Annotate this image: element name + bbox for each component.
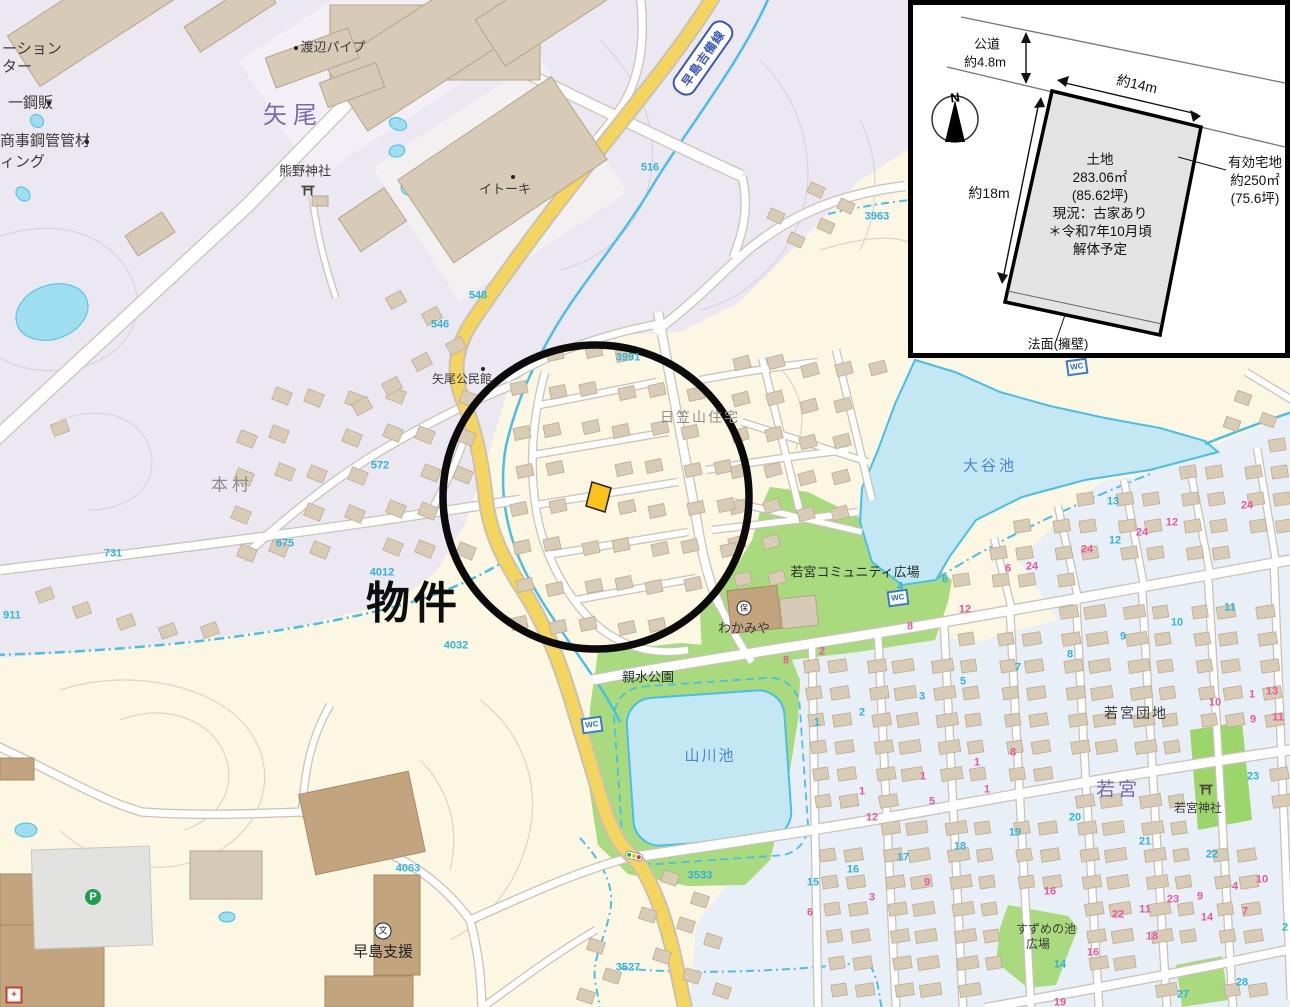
school-icon: 文 [375,923,392,940]
inset-road-width: 約4.8m [964,56,1006,69]
poi-label-yao-kominkan: 矢尾公民館 [432,373,492,385]
block-number: 16 [1087,948,1099,959]
block-number: 3527 [616,963,640,974]
block-number: 731 [104,549,122,560]
block-number: 19 [1009,828,1021,839]
inset-land-line: 283.06㎡ [1048,169,1152,187]
block-number: 24 [1026,562,1038,573]
area-label-hikasayama: 日笠山住宅 [660,410,740,424]
poi-label-hayashima-shien: 早島支援 [353,945,413,960]
north-compass: N [932,89,978,142]
lake-label-yamakawa: 山川池 [684,750,735,765]
block-number: 5 [960,677,966,688]
block-number: 7 [1242,907,1248,918]
block-number: 2 [859,708,865,719]
block-number: 546 [431,320,449,331]
block-number: 3 [919,692,925,703]
inset-effective-line: 有効宅地 [1228,154,1282,172]
block-number: 1 [814,718,820,729]
block-number: 12 [959,605,971,616]
poi-label-itoki: イトーキ [479,183,531,196]
block-number: 19 [1054,998,1066,1007]
poi-dot [511,175,515,179]
block-number: 10 [1209,698,1221,709]
block-number: 4032 [444,641,468,652]
parking-icon: P [85,889,101,905]
area-label-wakamiya: 若宮 [1096,781,1140,800]
nursery-icon: 保 [737,601,752,616]
block-number: 5 [929,797,935,808]
block-number: 4012 [370,568,394,579]
poi-dot [294,46,298,50]
block-number: 12 [1166,518,1178,529]
block-number: 9 [1250,715,1256,726]
poi-label-station-1: ーション [2,42,62,57]
area-label-yao: 矢尾 [263,104,323,128]
lake-label-otani: 大谷池 [963,460,1017,475]
block-number: 23 [1167,895,1179,906]
block-number: 11 [1224,603,1236,614]
block-number: 15 [807,878,819,889]
torii-icon [301,184,316,197]
inset-left-height: 約18m [968,186,1009,200]
poi-dot [47,101,51,105]
block-number: 11 [1139,905,1151,916]
block-number: 12 [866,813,878,824]
block-number: 8 [1010,748,1016,759]
area-label-wakamiya-danchi: 若宮団地 [1104,706,1168,720]
block-number: 27 [1177,990,1189,1001]
block-number: 1 [984,785,990,796]
block-number: 21 [1139,837,1151,848]
poi-label-station-2: ター [2,60,32,75]
wc-icon: WC [1065,358,1088,377]
block-number: 4 [897,582,903,593]
block-number: 2 [819,647,825,658]
poi-label-kumano-jinja: 熊野神社 [279,165,331,178]
block-number: 3533 [688,871,712,882]
block-number: 1 [859,787,865,798]
inset-road-name: 公道 [974,38,1000,51]
block-number: 20 [1069,813,1081,824]
block-number: 9 [1120,632,1126,643]
inset-effective-line: 約250㎡ [1228,172,1282,190]
block-number: 8 [907,622,913,633]
block-number: 3963 [865,212,889,223]
block-number: 8 [1067,650,1073,661]
real-estate-location-map: ーション ター 一鋼販 商事鋼管管材 ィング 渡辺パイプ 矢尾 熊野神社 イトー… [0,0,1290,1007]
block-number: 9 [1197,892,1203,903]
block-number: 7 [1015,663,1021,674]
block-number: 24 [1241,501,1253,512]
block-number: 17 [897,853,909,864]
block-number: 24 [1136,528,1148,539]
poi-label-watanabe-pipe: 渡辺パイプ [300,41,365,54]
block-number: 516 [641,163,659,174]
inset-slope-label: 法面(擁壁) [1028,338,1089,351]
block-number: 6 [942,575,948,586]
block-number: 16 [1044,887,1056,898]
block-number: 28 [1236,978,1248,989]
poi-label-suzume-1: すずめの池 [1016,923,1076,935]
poi-label-wakamiya-hoikuen: わかみや [718,622,770,635]
poi-dot [85,140,89,144]
poi-dot [481,367,485,371]
plot-diagram-inset: N 公道 約4.8m 約14m 約18m 土地 283.06㎡ (85.62坪)… [908,0,1290,358]
poi-label-wakamiya-jinja: 若宮神社 [1174,802,1222,814]
block-number: 22 [1112,910,1124,921]
inset-land-line: (85.62坪) [1048,187,1152,205]
inset-effective-info: 有効宅地 約250㎡ (75.6坪) [1228,154,1282,208]
block-number: 10 [1256,875,1268,886]
poi-label-wakamiya-plaza: 若宮コミュニティ広場 [790,566,919,579]
block-number: 4 [1232,882,1238,893]
block-number: 675 [276,539,294,550]
block-number: 11 [1272,713,1284,724]
block-number: 6 [1005,564,1011,575]
block-number: 18 [1146,932,1158,943]
block-number: 1 [920,772,926,783]
block-number: 22 [1206,850,1218,861]
block-number: 6 [807,908,813,919]
block-number: 13 [1266,687,1278,698]
block-number: 12 [1109,536,1121,547]
block-number: 16 [847,865,859,876]
block-number: 1 [974,758,980,769]
poi-label-shinsui-park: 親水公園 [622,671,674,684]
poi-label-shoji: 商事鋼管管材 [0,134,90,149]
inset-land-line: 現況：古家あり [1048,205,1152,223]
block-number: 18 [954,842,966,853]
block-number: 3 [869,893,875,904]
inset-land-line: ＊令和7年10月頃 [1048,223,1152,241]
block-number: 24 [1081,545,1093,556]
inset-land-line: 土地 [1048,151,1152,169]
block-number: 548 [469,291,487,302]
block-number: 13 [1107,497,1119,508]
property-label: 物件 [366,582,460,626]
inset-land-info: 土地 283.06㎡ (85.62坪) 現況：古家あり ＊令和7年10月頃 解体… [1048,151,1152,259]
block-number: 4063 [396,864,420,875]
block-number: 3991 [616,353,640,364]
torii-icon [1199,783,1214,796]
block-number: 8 [783,656,789,667]
area-label-honmura: 本村 [211,477,253,494]
block-number: 9 [924,878,930,889]
inset-effective-line: (75.6坪) [1228,190,1282,208]
north-letter: N [949,89,960,105]
inset-land-line: 解体予定 [1048,241,1152,259]
block-number: 14 [1054,960,1066,971]
block-number: 572 [371,461,389,472]
poi-label-suzume-2: 広場 [1026,938,1050,950]
block-number: 911 [3,611,21,622]
poi-label-ing: ィング [0,155,45,170]
block-number: 10 [1171,618,1183,629]
block-number: 1 [1249,690,1255,701]
block-number: 2 [1282,923,1288,934]
hospital-icon: + [6,987,23,1004]
block-number: 23 [1247,772,1259,783]
wc-icon: WC [580,716,603,735]
block-number: 14 [1201,913,1213,924]
